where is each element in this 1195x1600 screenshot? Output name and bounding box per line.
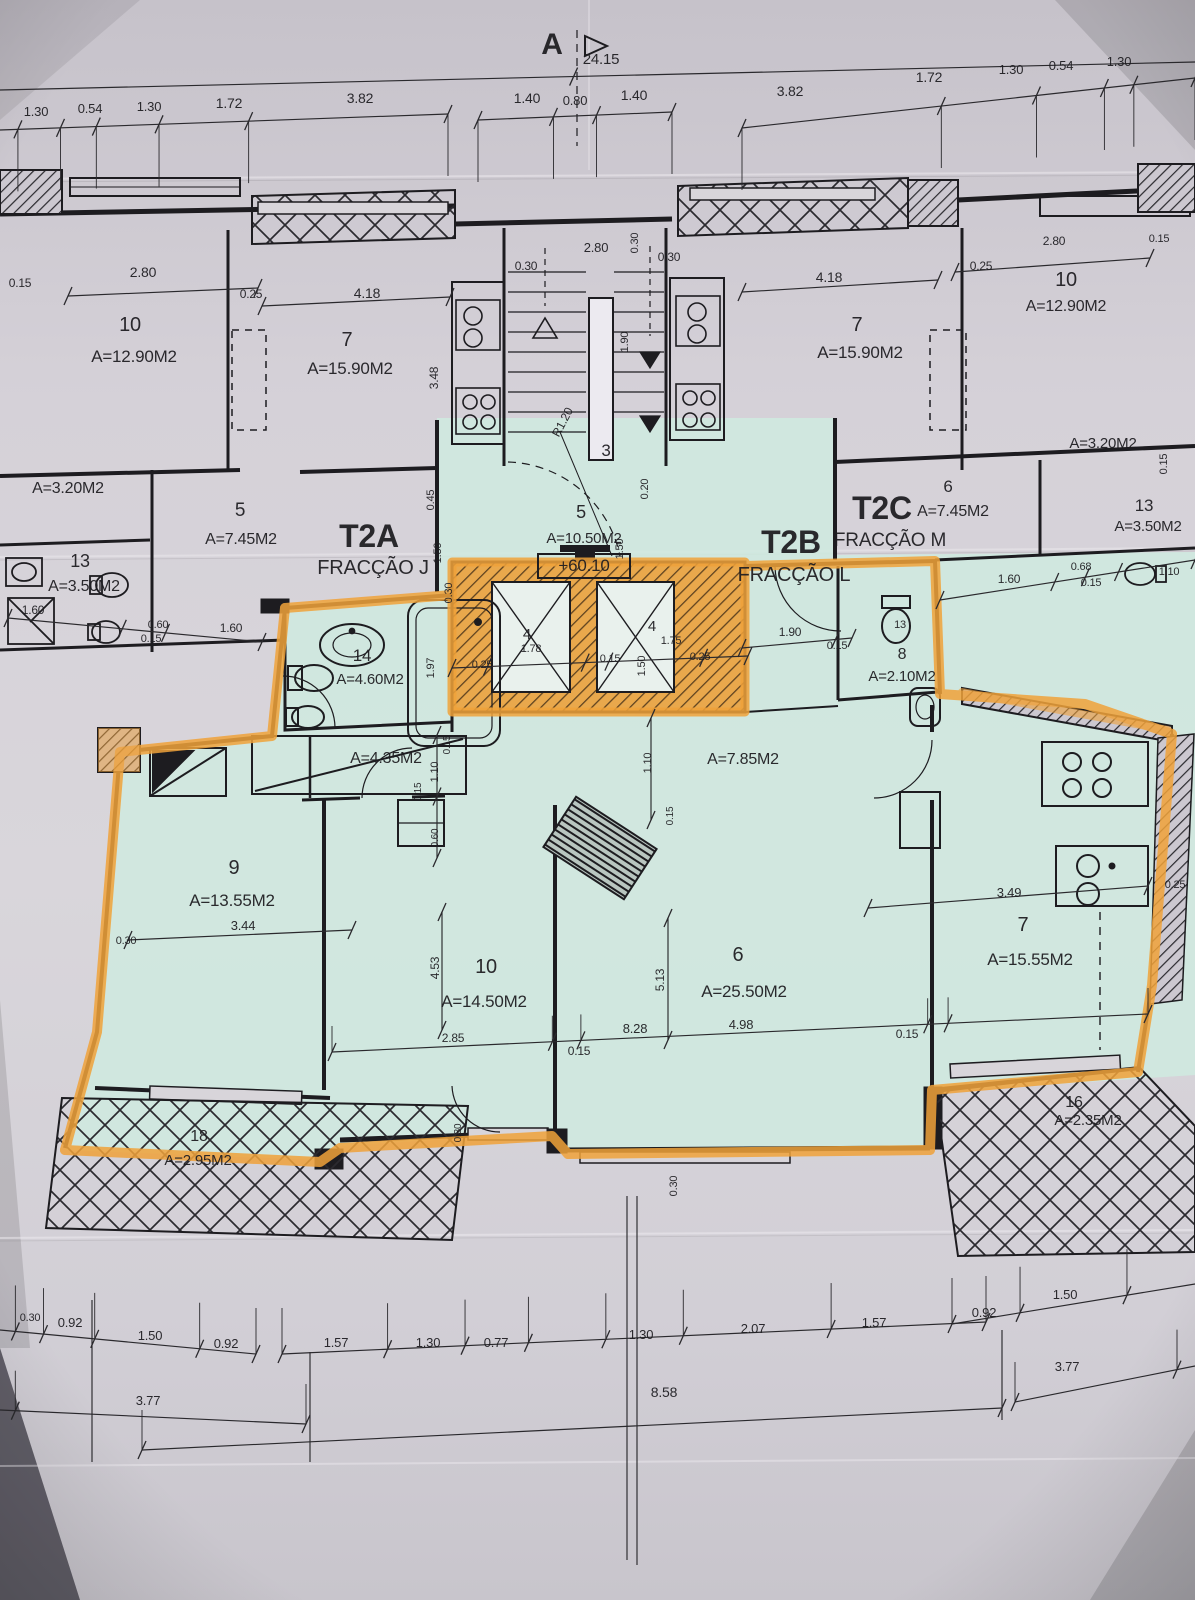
floor-plan-photo: A24.151.400.801.401.300.541.301.723.823.…	[0, 0, 1195, 1600]
floor-plan-drawing: A24.151.400.801.401.300.541.301.723.823.…	[0, 0, 1195, 1600]
photo-vignette	[0, 0, 1195, 1600]
